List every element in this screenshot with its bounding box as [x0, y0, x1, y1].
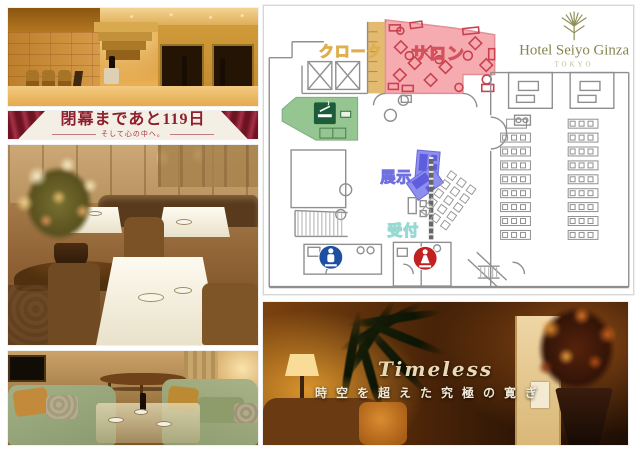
pillow — [46, 395, 78, 419]
divider-line — [170, 134, 214, 135]
countdown-subtitle: そして心の中へ。 — [101, 129, 165, 139]
doorman-figure — [220, 58, 225, 86]
banquet-tables — [501, 119, 598, 239]
smoking-icon — [314, 102, 336, 124]
divider-line — [52, 134, 96, 135]
curtain-left-decoration — [8, 111, 45, 139]
smoking-bench — [341, 111, 351, 117]
hotel-logo-city: TOKYO — [555, 61, 594, 69]
hotel-logo-name: Hotel Seiyo Ginza — [519, 43, 629, 59]
pillow — [12, 387, 49, 417]
concierge-podium — [104, 68, 119, 84]
exhibit-label: 展示 — [380, 168, 412, 186]
hotel-logo-tree-icon — [562, 12, 586, 40]
glass-coffee-table — [96, 403, 200, 443]
plate — [174, 287, 192, 294]
salon-label: サロン — [411, 44, 465, 64]
floorplan-panel: クローク サロン 展示 受付 Hotel Seiyo Ginza TOKYO — [263, 5, 634, 295]
curtain-right-decoration — [221, 111, 258, 139]
reception-label: 受付 — [387, 221, 419, 239]
elevator-icons — [308, 62, 360, 90]
plate — [176, 219, 192, 225]
hotel-promo-page: 閉幕まであと119日 そして心の中へ。 — [0, 0, 640, 452]
doorman-figure — [182, 56, 187, 86]
restaurant-mirror-panels — [158, 145, 258, 187]
dining-chair — [48, 263, 100, 345]
pillow — [234, 403, 258, 423]
plate — [156, 421, 172, 427]
plate — [138, 293, 164, 302]
tv-screen — [8, 355, 46, 382]
hotel-logo: Hotel Seiyo Ginza TOKYO — [519, 12, 629, 69]
plate — [88, 211, 102, 216]
closing-countdown-banner: 閉幕まであと119日 そして心の中へ。 — [8, 111, 258, 139]
lobby-floor — [8, 86, 258, 106]
lobby-chair — [26, 70, 39, 86]
cloak-label: クローク — [319, 43, 382, 61]
plate — [134, 409, 148, 415]
countdown-text: 閉幕まであと119日 — [61, 111, 206, 128]
plate — [108, 417, 124, 423]
dining-table — [158, 207, 230, 237]
suite-lounge-photo — [8, 351, 258, 445]
timeless-subtitle: 時空を超えた究極の寛ぎ — [263, 384, 598, 401]
timeless-photo: Timeless 時空を超えた究極の寛ぎ — [263, 302, 628, 445]
floorplan-map: クローク サロン 展示 受付 Hotel Seiyo Ginza TOKYO — [264, 6, 633, 294]
lobby-chair — [42, 70, 55, 86]
womens-restroom-icon — [413, 246, 437, 270]
lobby-photo — [8, 8, 258, 106]
orange-pillow — [359, 402, 407, 445]
timeless-title: Timeless — [263, 357, 608, 381]
dining-chair — [202, 283, 258, 345]
lobby-upper-structure — [8, 8, 100, 34]
mens-restroom-icon — [319, 245, 343, 269]
countdown-subtitle-row: そして心の中へ。 — [52, 129, 214, 139]
restaurant-photo — [8, 145, 258, 345]
lobby-chair — [58, 70, 71, 86]
lobby-doorway-right — [212, 44, 254, 88]
